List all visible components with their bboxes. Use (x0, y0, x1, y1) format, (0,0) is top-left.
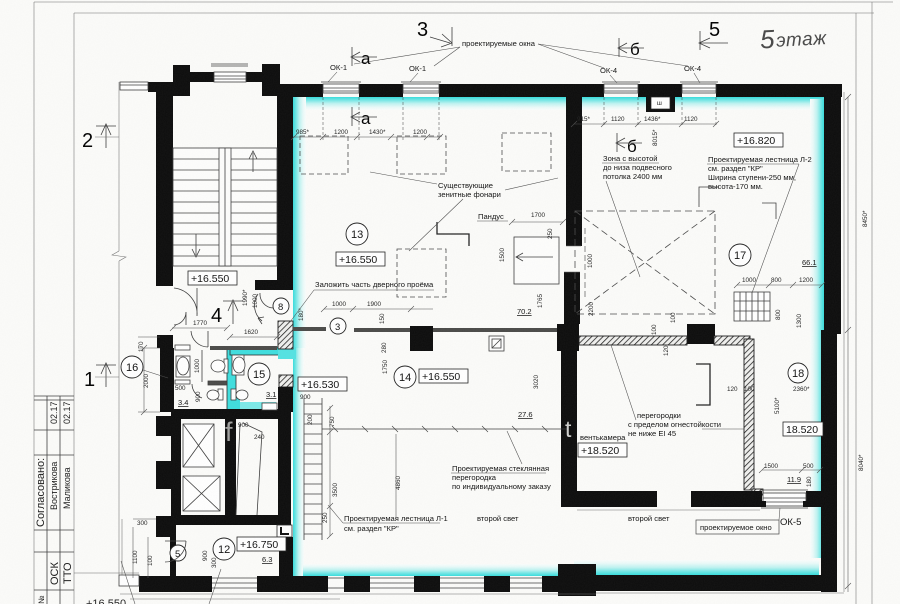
svg-text:№: № (37, 595, 46, 604)
svg-text:Согласовано:: Согласовано: (35, 458, 47, 527)
svg-text:Маликова: Маликова (62, 467, 72, 509)
svg-text:ОСК: ОСК (49, 562, 61, 586)
svg-text:ТТО: ТТО (62, 562, 74, 584)
svg-text:02.17: 02.17 (49, 401, 59, 424)
svg-text:02.17: 02.17 (62, 401, 72, 424)
svg-text:Вострикова: Вострикова (49, 462, 59, 510)
